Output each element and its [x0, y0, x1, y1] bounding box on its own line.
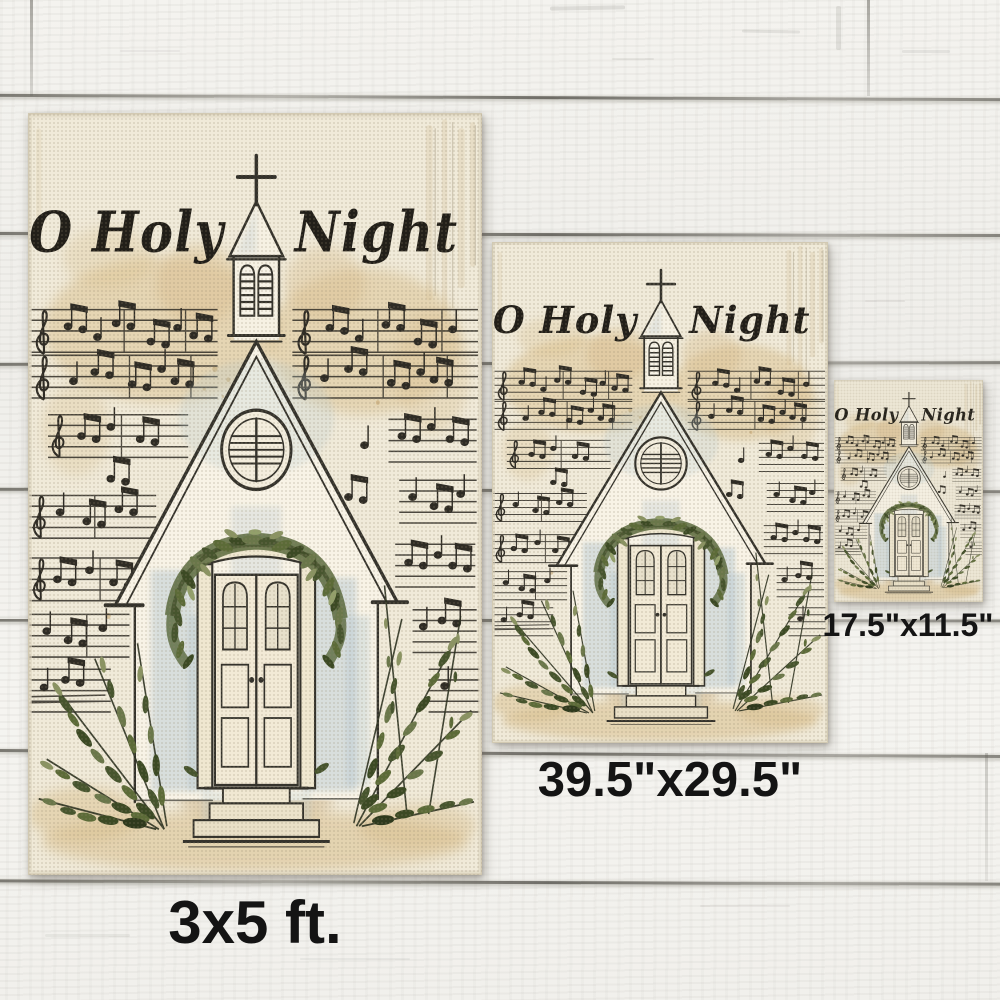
wood-distress-mark	[865, 300, 905, 302]
size-label-17-5x11-5: 17.5"x11.5"	[822, 609, 994, 641]
wood-distress-mark	[836, 6, 841, 50]
product-photo: O Holy Night 3x5 ft. O Holy Night 39.5"x…	[0, 0, 1000, 1000]
wood-distress-mark	[300, 958, 410, 960]
art-title-night: Night	[921, 405, 976, 424]
wood-distress-mark	[902, 50, 950, 53]
wood-distress-mark	[612, 58, 654, 60]
art-title-night: Night	[293, 198, 459, 265]
size-label-3x5ft: 3x5 ft.	[28, 893, 482, 953]
rug-17-5x11-5: O Holy Night	[834, 380, 983, 602]
wood-distress-mark	[700, 905, 790, 907]
art-title-o-holy: O Holy	[493, 298, 639, 342]
size-label-39-5x29-5: 39.5"x29.5"	[492, 756, 848, 805]
rug-39-5x29-5: O Holy Night	[492, 242, 828, 743]
wood-distress-mark	[120, 50, 180, 52]
wood-distress-mark	[550, 5, 625, 10]
church-watercolor-art: O Holy Night	[834, 380, 983, 602]
plank-seam	[30, 0, 33, 96]
plank-seam	[867, 0, 870, 96]
plank-gap	[0, 94, 1000, 101]
church-watercolor-art: O Holy Night	[28, 113, 482, 875]
church-watercolor-art: O Holy Night	[492, 242, 828, 743]
art-title-o-holy: O Holy	[29, 198, 226, 265]
art-title-o-holy: O Holy	[834, 405, 899, 424]
wood-distress-mark	[742, 29, 800, 33]
plank-gap	[0, 879, 1000, 885]
rug-3x5ft: O Holy Night	[28, 113, 482, 875]
art-title-night: Night	[688, 298, 810, 342]
plank-seam	[985, 753, 988, 881]
